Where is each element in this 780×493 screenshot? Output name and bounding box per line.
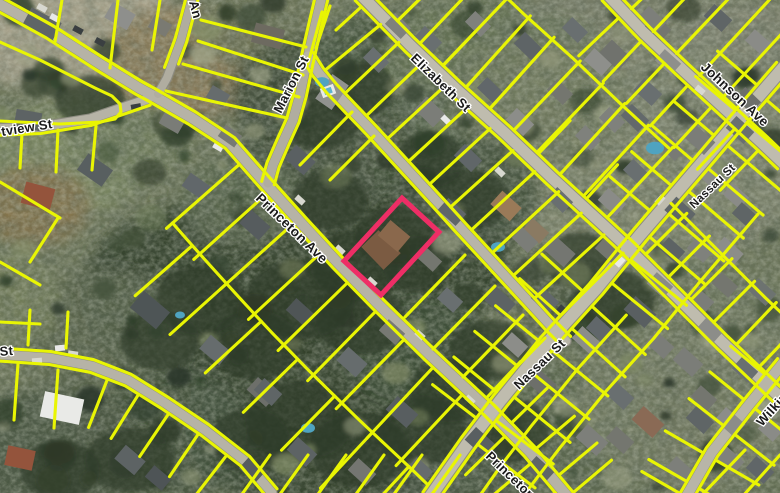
svg-text:St: St (0, 343, 14, 359)
